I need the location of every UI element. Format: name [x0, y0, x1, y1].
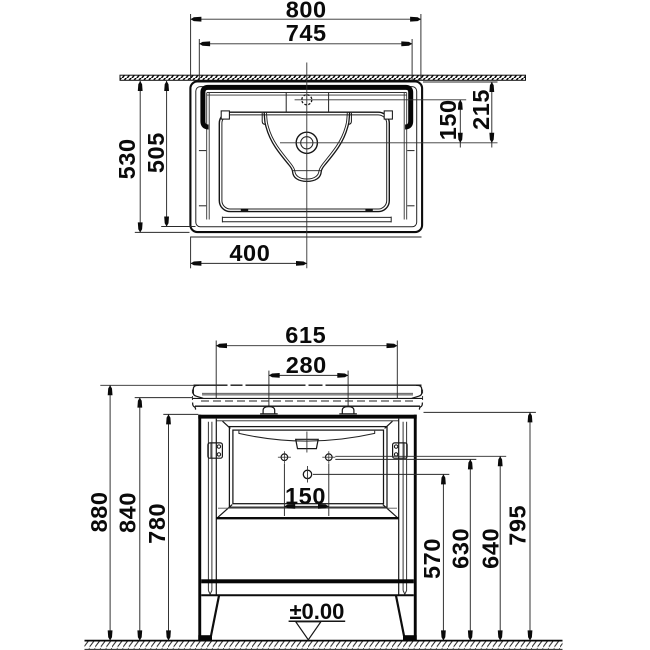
svg-text:840: 840	[115, 492, 141, 533]
svg-text:505: 505	[143, 132, 169, 173]
svg-text:280: 280	[286, 352, 327, 378]
svg-text:150: 150	[285, 483, 326, 509]
svg-text:800: 800	[286, 0, 327, 23]
svg-text:215: 215	[468, 89, 494, 130]
svg-text:±0.00: ±0.00	[289, 599, 344, 624]
svg-text:615: 615	[285, 322, 326, 348]
svg-text:150: 150	[435, 99, 461, 140]
svg-text:400: 400	[229, 240, 270, 266]
svg-text:570: 570	[419, 538, 445, 579]
svg-text:780: 780	[144, 503, 170, 544]
svg-text:630: 630	[447, 528, 473, 569]
svg-text:880: 880	[86, 491, 112, 532]
svg-text:640: 640	[477, 528, 503, 569]
svg-text:530: 530	[114, 138, 140, 179]
svg-text:745: 745	[286, 20, 327, 46]
svg-text:795: 795	[504, 505, 530, 546]
